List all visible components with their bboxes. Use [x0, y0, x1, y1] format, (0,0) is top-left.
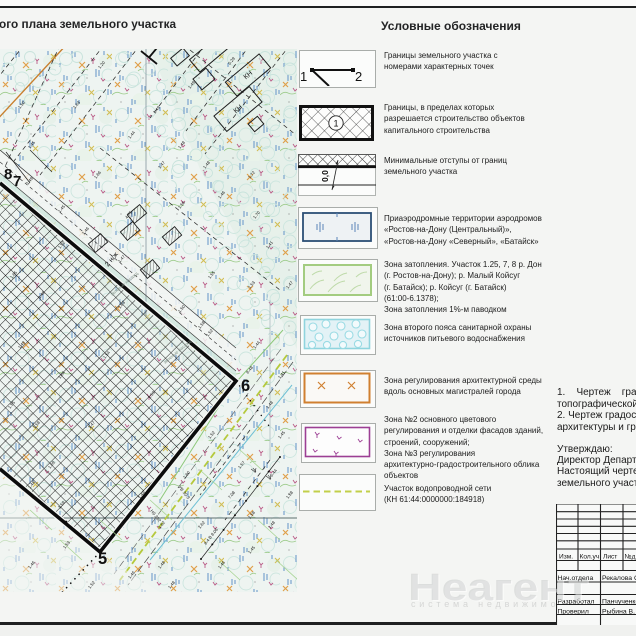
svg-text:Лист: Лист	[603, 554, 617, 561]
svg-text:Кол.уч: Кол.уч	[580, 554, 600, 561]
svg-text:5: 5	[98, 550, 107, 568]
svg-text:Рекалова С: Рекалова С	[602, 575, 636, 582]
svg-text:8: 8	[4, 166, 12, 183]
svg-text:2: 2	[355, 69, 362, 84]
svg-text:7: 7	[13, 173, 21, 190]
svg-text:Рыбина В.: Рыбина В.	[602, 608, 635, 616]
svg-text:0,0: 0,0	[320, 170, 330, 182]
svg-text:Изм.: Изм.	[559, 554, 573, 561]
svg-text:№д: №д	[625, 554, 636, 561]
svg-text:Панчученко: Панчученко	[602, 599, 636, 606]
svg-text:6: 6	[241, 377, 250, 395]
svg-text:1: 1	[300, 69, 307, 84]
svg-text:1: 1	[333, 119, 338, 129]
